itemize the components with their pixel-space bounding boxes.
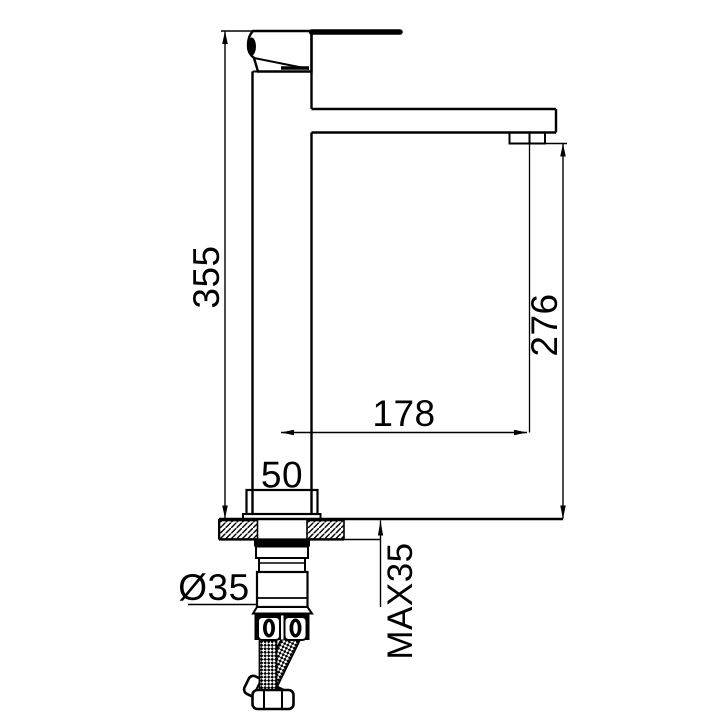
counter-hatch-right	[307, 521, 344, 540]
dimension-outlet-height: 276	[524, 144, 567, 519]
dimension-spout-reach: 178	[281, 393, 527, 435]
arrow-up	[222, 31, 228, 44]
outlet-height-label: 276	[524, 293, 565, 356]
max-deck-thickness-label: MAX35	[381, 542, 420, 659]
overall-height-label: 355	[186, 245, 227, 308]
spout-reach-label: 178	[372, 393, 435, 434]
under-counter-shank	[253, 541, 312, 641]
arrow-up	[560, 144, 566, 157]
arrow-left	[281, 430, 294, 436]
arrow-down	[560, 506, 566, 519]
arrow-up	[378, 521, 383, 536]
hole-diameter-label: Ø35	[178, 567, 249, 608]
drawing-canvas: 355 276 178 50 Ø35 MAX35	[0, 0, 720, 720]
handle-head	[247, 31, 400, 72]
arrow-down	[222, 506, 228, 519]
aerator-nozzle	[510, 133, 546, 144]
counter-hatch-left	[220, 521, 258, 540]
hose-nut-left	[253, 690, 294, 709]
dimension-max-deck-thickness: MAX35	[378, 521, 420, 660]
body-width-label: 50	[261, 455, 303, 496]
countertop-section	[219, 519, 563, 540]
faucet-technical-drawing: 355 276 178 50 Ø35 MAX35	[0, 0, 720, 720]
faucet-body	[243, 31, 321, 519]
dimension-body-width: 50	[261, 455, 303, 496]
hose-connection-block	[255, 614, 310, 641]
dimension-overall-height: 355	[186, 31, 253, 519]
spout	[312, 109, 557, 144]
dimension-hole-diameter: Ø35	[178, 567, 257, 608]
arrow-right	[514, 430, 527, 436]
